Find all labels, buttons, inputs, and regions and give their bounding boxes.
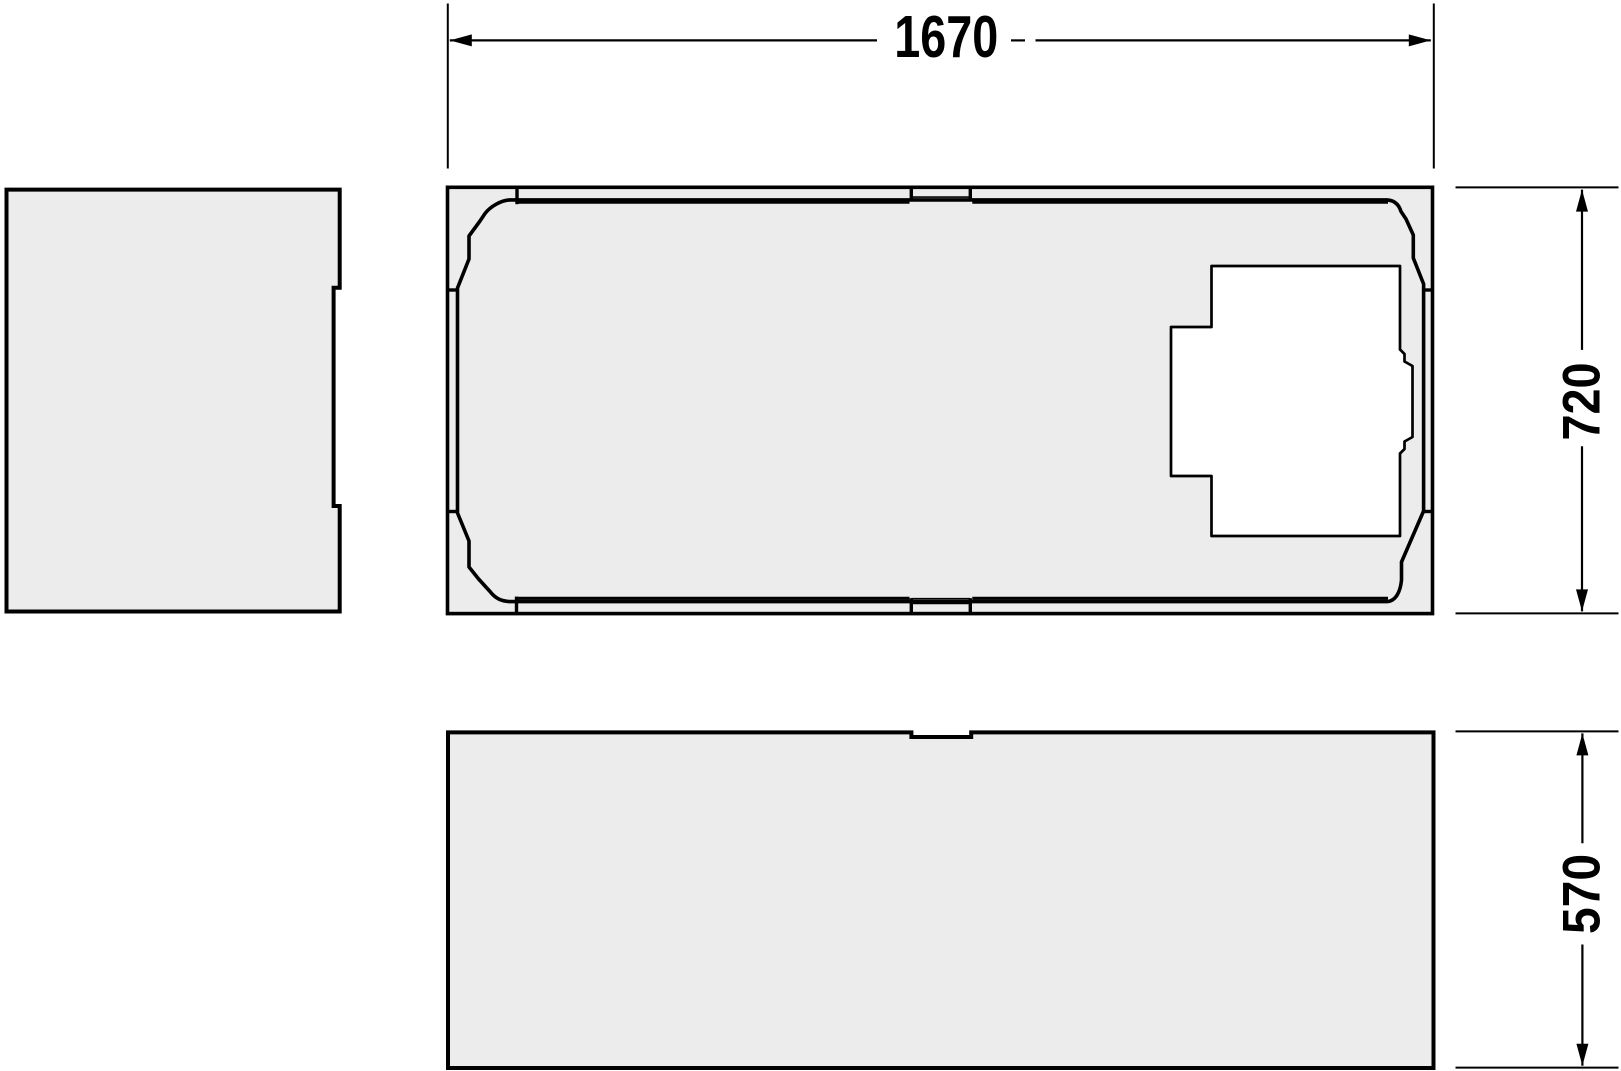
svg-text:570: 570 (1552, 854, 1611, 934)
svg-text:1670: 1670 (894, 4, 998, 70)
svg-text:720: 720 (1552, 363, 1611, 441)
